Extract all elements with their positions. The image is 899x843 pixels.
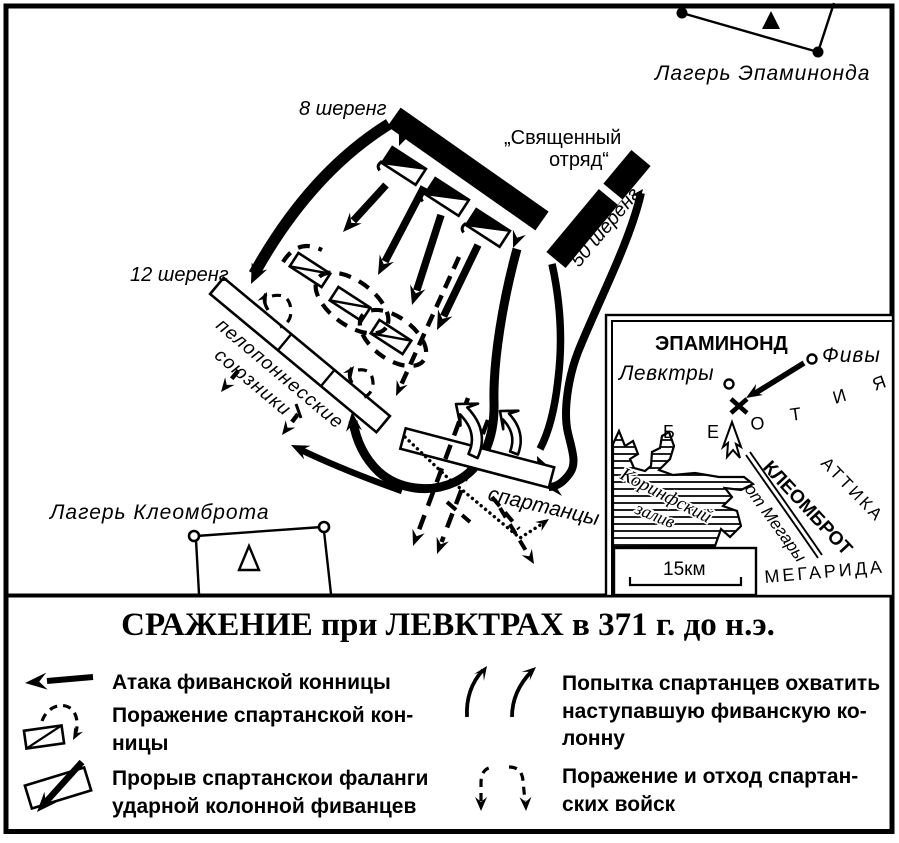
svg-text:12 шеренг: 12 шеренг [130,264,229,286]
svg-text:Попытка спартанцев охватить: Попытка спартанцев охватить [562,672,880,695]
svg-text:Е: Е [707,422,719,442]
svg-text:ских войск: ских войск [562,793,676,816]
svg-text:Лагерь Клеомброта: Лагерь Клеомброта [48,501,270,524]
svg-text:ударной колонной фиванцев: ударной колонной фиванцев [112,795,416,818]
svg-text:Лагерь Эпаминонда: Лагерь Эпаминонда [653,62,870,85]
svg-text:лонну: лонну [562,727,625,750]
svg-text:отряд“: отряд“ [549,149,609,171]
svg-text:ницы: ницы [112,732,168,755]
svg-text:Поражение и отход спартан-: Поражение и отход спартан- [562,765,858,788]
svg-text:наступавшую фиванскую ко-: наступавшую фиванскую ко- [562,700,867,723]
svg-text:15км: 15км [663,559,706,580]
svg-text:Поражение спартанской кон-: Поражение спартанской кон- [112,704,413,727]
svg-text:Прорыв спартанскои фаланги: Прорыв спартанскои фаланги [112,767,428,790]
svg-text:Фивы: Фивы [822,344,881,367]
svg-text:„Священный: „Священный [504,127,621,149]
svg-text:Атака фиванской конницы: Атака фиванской конницы [112,671,391,694]
svg-text:Б: Б [663,422,675,442]
svg-text:8 шеренг: 8 шеренг [299,98,387,120]
svg-text:Левктры: Левктры [617,362,714,385]
svg-text:СРАЖЕНИЕ при ЛЕВКТРАХ в 371 г.: СРАЖЕНИЕ при ЛЕВКТРАХ в 371 г. до н.э. [121,607,775,643]
svg-text:О: О [750,413,766,434]
svg-text:ЭПАМИНОНД: ЭПАМИНОНД [655,333,788,355]
